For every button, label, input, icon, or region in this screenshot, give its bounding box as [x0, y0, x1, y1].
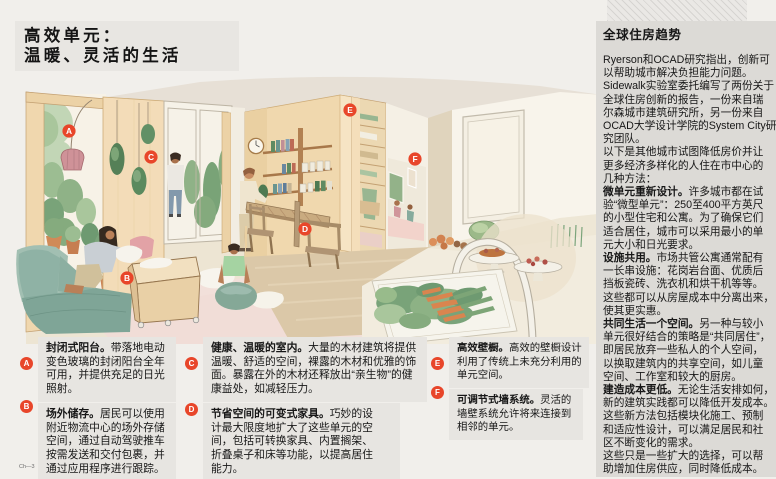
svg-text:D: D [302, 224, 308, 234]
svg-text:A: A [66, 126, 72, 136]
svg-text:E: E [347, 105, 353, 115]
svg-text:C: C [148, 152, 154, 162]
svg-text:B: B [124, 273, 130, 283]
svg-text:F: F [412, 154, 417, 164]
